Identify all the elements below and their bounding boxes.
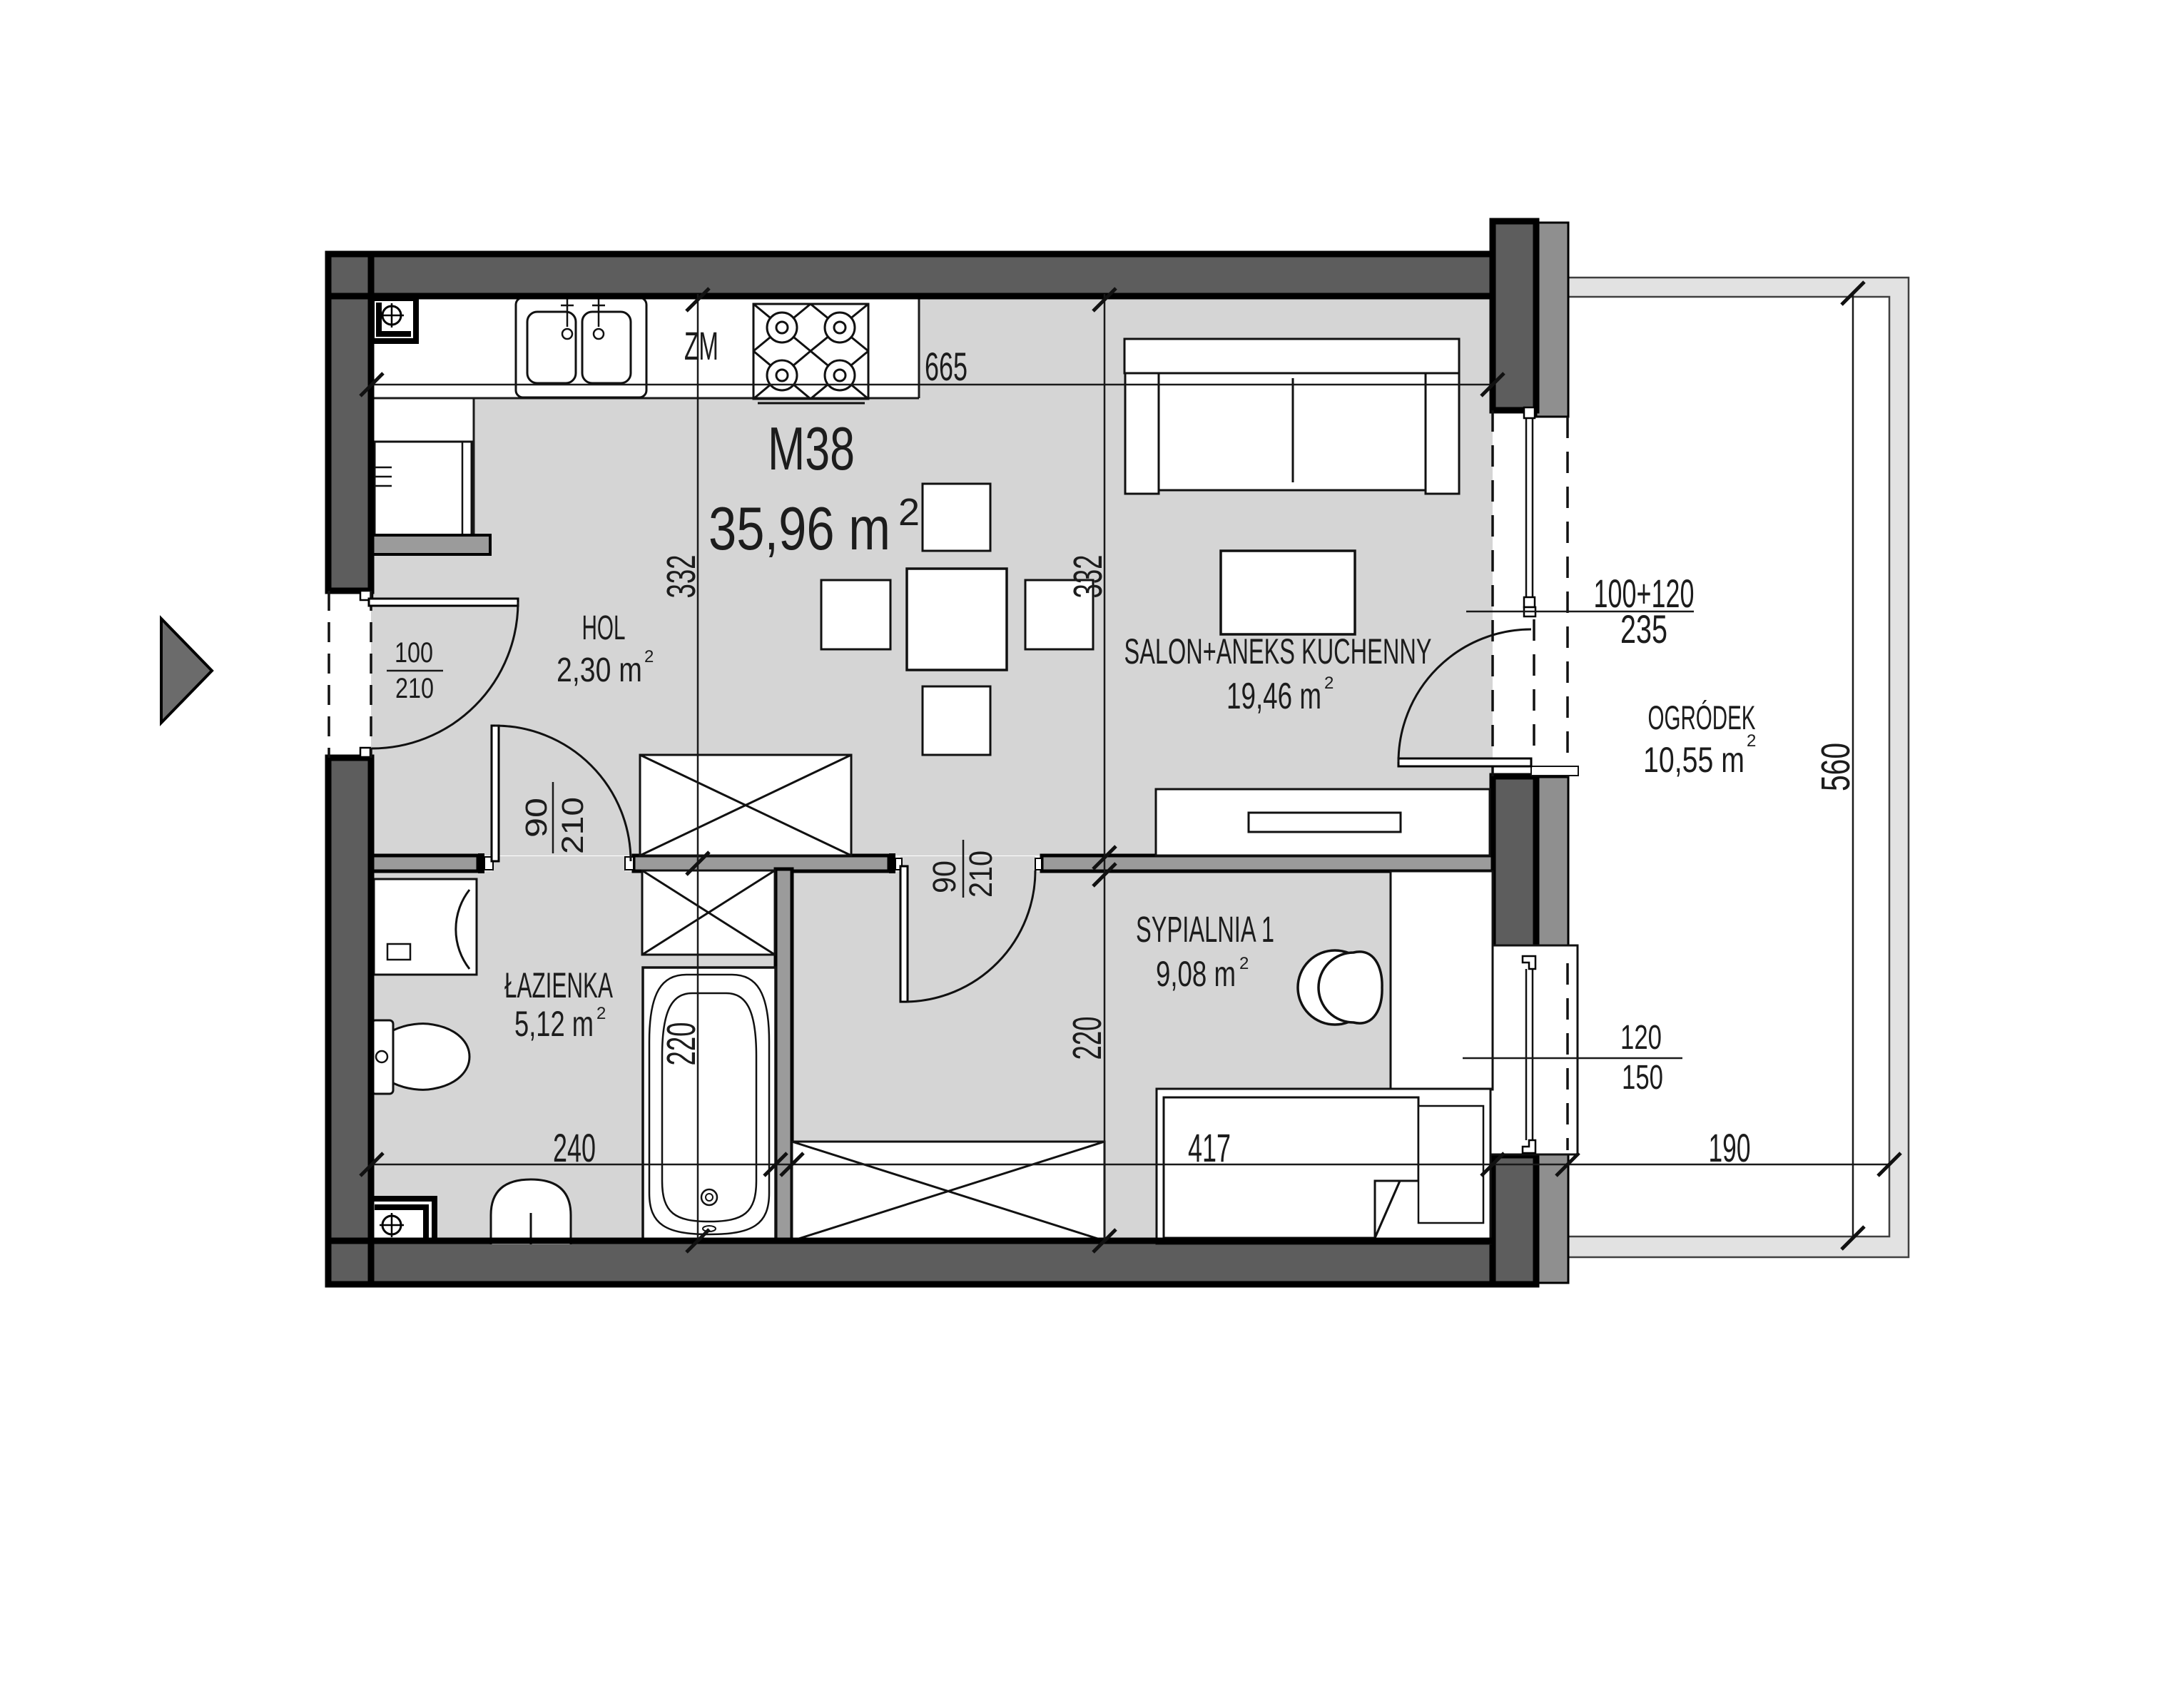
svg-text:2: 2	[1239, 954, 1249, 973]
svg-text:SYPIALNIA 1: SYPIALNIA 1	[1136, 909, 1274, 950]
svg-text:240: 240	[553, 1125, 596, 1170]
svg-text:120: 120	[1620, 1019, 1662, 1057]
svg-text:2,30 m: 2,30 m	[557, 651, 642, 689]
svg-text:150: 150	[1622, 1059, 1663, 1097]
svg-text:2: 2	[596, 1004, 606, 1023]
svg-text:19,46 m: 19,46 m	[1226, 676, 1321, 717]
svg-text:210: 210	[963, 850, 999, 898]
svg-text:HOL: HOL	[582, 609, 626, 647]
svg-text:35,96 m: 35,96 m	[708, 495, 890, 563]
svg-text:SALON+ANEKS KUCHENNY: SALON+ANEKS KUCHENNY	[1124, 631, 1432, 671]
svg-text:10,55 m: 10,55 m	[1643, 740, 1744, 780]
svg-text:M38: M38	[768, 415, 855, 483]
svg-text:190: 190	[1709, 1125, 1751, 1170]
svg-text:100: 100	[395, 637, 433, 669]
svg-text:332: 332	[659, 555, 704, 599]
svg-text:9,08 m: 9,08 m	[1156, 954, 1236, 994]
svg-text:90: 90	[519, 798, 554, 838]
svg-text:OGRÓDEK: OGRÓDEK	[1648, 699, 1756, 736]
svg-text:235: 235	[1620, 606, 1667, 651]
svg-text:2: 2	[1747, 731, 1756, 751]
svg-text:2: 2	[1324, 674, 1334, 693]
svg-text:90: 90	[926, 860, 963, 893]
svg-text:2: 2	[898, 491, 920, 534]
svg-text:665: 665	[925, 344, 967, 389]
svg-text:5,12 m: 5,12 m	[514, 1004, 594, 1044]
svg-text:210: 210	[556, 797, 590, 854]
svg-text:560: 560	[1813, 743, 1859, 791]
svg-text:220: 220	[659, 1022, 704, 1066]
svg-text:2: 2	[644, 647, 654, 666]
svg-text:417: 417	[1188, 1125, 1231, 1170]
svg-text:332: 332	[1065, 555, 1111, 599]
svg-text:ŁAZIENKA: ŁAZIENKA	[504, 965, 613, 1005]
svg-text:220: 220	[1065, 1017, 1110, 1060]
svg-text:ZM: ZM	[684, 323, 718, 368]
svg-text:210: 210	[395, 673, 434, 704]
